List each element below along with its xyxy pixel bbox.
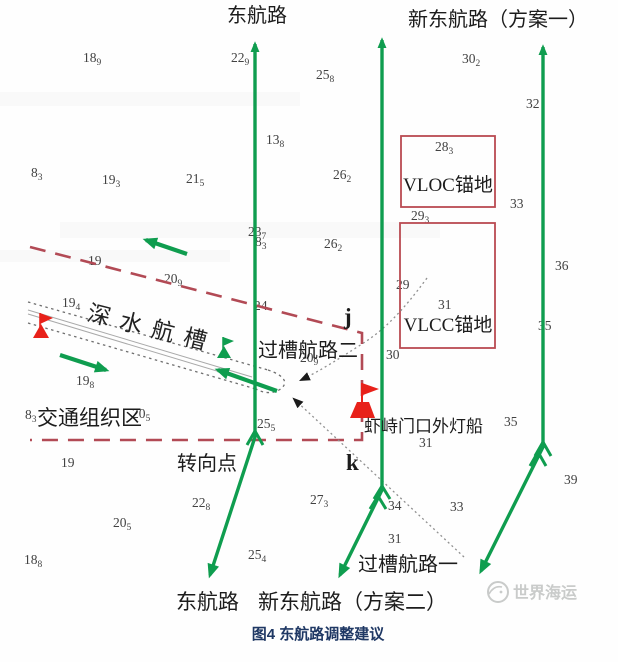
watermark-text: 世界海运 <box>513 583 577 602</box>
depth-sounding: 83 <box>31 165 43 183</box>
bend-chevron <box>370 496 386 509</box>
channel-entry-arrow <box>218 370 277 391</box>
label-deep-water-channel: 深水航槽 <box>85 301 219 357</box>
depth-sounding: 34 <box>388 498 402 513</box>
depth-sounding: 273 <box>310 492 329 510</box>
depth-sounding: 215 <box>186 171 205 189</box>
depth-sounding: 283 <box>435 139 454 157</box>
depth-sounding: 228 <box>192 495 211 513</box>
label-point-k: k <box>346 450 359 475</box>
depth-sounding: 31 <box>438 297 452 312</box>
depth-sounding: 188 <box>24 552 43 570</box>
depth-sounding: 254 <box>248 547 267 565</box>
depth-sounding: 189 <box>83 50 102 68</box>
depth-sounding: 229 <box>231 50 250 68</box>
depth-sounding: 138 <box>266 132 285 150</box>
flow-arrow-southeast <box>60 355 106 370</box>
label-cross-channel-route-2: 过槽航路二 <box>258 339 358 362</box>
depth-sounding: 262 <box>333 167 352 185</box>
depth-sounding: 193 <box>102 172 121 190</box>
depth-sounding: 19 <box>88 253 102 268</box>
label-traffic-organization-zone: 交通组织区 <box>37 406 142 430</box>
depth-sounding: 205 <box>113 515 132 533</box>
green-buoy-icon <box>217 337 234 358</box>
depth-sounding: 35 <box>504 414 518 429</box>
label-turning-point: 转向点 <box>177 452 237 475</box>
new-east-route-right-line <box>481 47 543 571</box>
chart-canvas: 1892292583021383283193215262283332932622… <box>0 0 618 662</box>
east-route-line <box>210 44 255 575</box>
depth-sounding: 194 <box>62 295 81 313</box>
depth-sounding: 33 <box>450 499 464 514</box>
depth-sounding: 83 <box>25 407 37 425</box>
label-vloc-anchorage: VLOC锚地 <box>403 174 493 196</box>
depth-sounding: 258 <box>316 67 335 85</box>
label-vlcc-anchorage: VLCC锚地 <box>404 314 493 336</box>
label-cross-channel-route-1: 过槽航路一 <box>358 553 458 576</box>
scan-artifact <box>0 250 230 262</box>
depth-sounding: 198 <box>76 373 95 391</box>
label-new-east-route-plan1: 新东航路（方案一） <box>408 8 588 31</box>
depth-sounding: 36 <box>555 258 569 273</box>
watermark-logo-icon <box>488 582 508 602</box>
label-east-route-top: 东航路 <box>227 4 287 27</box>
depth-sounding: 35 <box>538 318 552 333</box>
depth-sounding: 29 <box>396 277 410 292</box>
depth-sounding: 31 <box>419 435 433 450</box>
figure-caption: 图4 东航路调整建议 <box>252 625 386 643</box>
depth-sounding: 302 <box>462 51 481 69</box>
depth-sounding: 30 <box>386 347 400 362</box>
nautical-chart-figure: 1892292583021383283193215262283332932622… <box>0 0 618 662</box>
label-new-east-route-plan2: 新东航路（方案二） <box>258 590 447 614</box>
depth-sounding: 39 <box>564 472 578 487</box>
depth-sounding: 31 <box>388 531 402 546</box>
label-east-route-bottom: 东航路 <box>176 590 239 614</box>
depth-sounding: 33 <box>510 196 524 211</box>
depth-sounding: 255 <box>257 416 276 434</box>
label-point-j: j <box>343 304 352 329</box>
depth-sounding: 32 <box>526 96 540 111</box>
label-lightship: 虾峙门口外灯船 <box>364 417 483 436</box>
lightship-icon <box>350 383 379 418</box>
depth-sounding: 19 <box>61 455 75 470</box>
depth-sounding: 209 <box>164 271 183 289</box>
depth-sounding: 262 <box>324 236 343 254</box>
